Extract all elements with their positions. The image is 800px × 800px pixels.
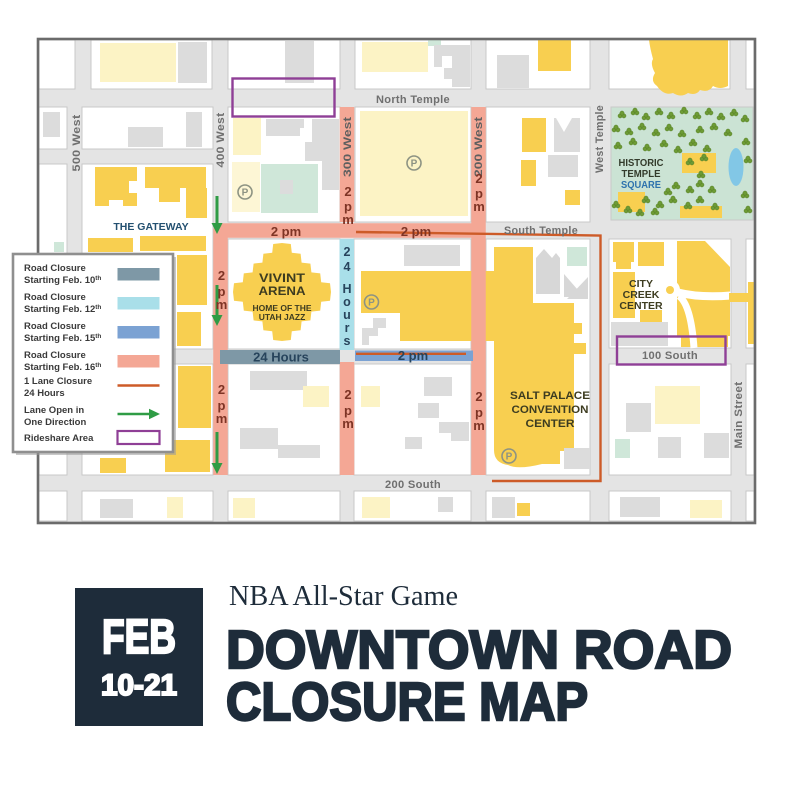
svg-text:300 West: 300 West bbox=[342, 117, 354, 177]
svg-text:Rideshare Area: Rideshare Area bbox=[24, 433, 94, 444]
svg-text:CENTER: CENTER bbox=[619, 300, 663, 312]
svg-text:Starting Feb. 10th: Starting Feb. 10th bbox=[24, 275, 101, 286]
svg-text:SQUARE: SQUARE bbox=[621, 179, 661, 191]
svg-text:400 West: 400 West bbox=[215, 112, 227, 167]
svg-text:ARENA: ARENA bbox=[259, 284, 306, 298]
svg-text:South Temple: South Temple bbox=[504, 225, 578, 237]
svg-text:2 pm: 2 pm bbox=[398, 348, 428, 363]
svg-text:CONVENTION: CONVENTION bbox=[512, 404, 589, 416]
svg-text:FEB: FEB bbox=[102, 611, 176, 664]
svg-text:10-21: 10-21 bbox=[101, 669, 177, 702]
svg-text:200 South: 200 South bbox=[385, 479, 441, 491]
svg-text:Road Closure: Road Closure bbox=[24, 350, 86, 361]
svg-text:P: P bbox=[411, 159, 418, 170]
svg-text:1 Lane Closure: 1 Lane Closure bbox=[24, 376, 92, 387]
svg-text:Road Closure: Road Closure bbox=[24, 321, 86, 332]
svg-text:CLOSURE MAP: CLOSURE MAP bbox=[226, 672, 588, 732]
svg-text:UTAH JAZZ: UTAH JAZZ bbox=[259, 312, 306, 322]
svg-text:SALT PALACE: SALT PALACE bbox=[510, 390, 590, 402]
svg-text:24 Hours: 24 Hours bbox=[253, 350, 309, 365]
svg-text:CENTER: CENTER bbox=[526, 418, 575, 430]
svg-text:Starting Feb. 12th: Starting Feb. 12th bbox=[24, 304, 101, 315]
svg-text:P: P bbox=[242, 188, 249, 199]
svg-text:Starting Feb. 16th: Starting Feb. 16th bbox=[24, 362, 101, 373]
svg-text:VIVINT: VIVINT bbox=[259, 271, 306, 285]
svg-text:Starting Feb. 15th: Starting Feb. 15th bbox=[24, 333, 101, 344]
svg-text:100 South: 100 South bbox=[642, 350, 698, 362]
svg-text:Lane Open in: Lane Open in bbox=[24, 405, 84, 416]
svg-text:West Temple: West Temple bbox=[594, 105, 606, 173]
svg-text:Road Closure: Road Closure bbox=[24, 292, 86, 303]
svg-text:North Temple: North Temple bbox=[376, 94, 450, 106]
svg-text:Road Closure: Road Closure bbox=[24, 263, 86, 274]
svg-text:2 pm: 2 pm bbox=[271, 224, 301, 239]
svg-text:Main Street: Main Street bbox=[733, 381, 745, 448]
svg-text:2 pm: 2 pm bbox=[401, 224, 431, 239]
svg-text:24 Hours: 24 Hours bbox=[24, 388, 65, 399]
svg-text:THE GATEWAY: THE GATEWAY bbox=[113, 221, 188, 233]
svg-text:DOWNTOWN ROAD: DOWNTOWN ROAD bbox=[226, 620, 732, 680]
svg-text:200 West: 200 West bbox=[473, 117, 485, 177]
svg-text:One Direction: One Direction bbox=[24, 417, 86, 428]
svg-text:NBA All-Star Game: NBA All-Star Game bbox=[229, 581, 458, 612]
svg-text:500 West: 500 West bbox=[71, 114, 83, 171]
svg-text:P: P bbox=[368, 298, 375, 309]
svg-text:P: P bbox=[506, 452, 513, 463]
